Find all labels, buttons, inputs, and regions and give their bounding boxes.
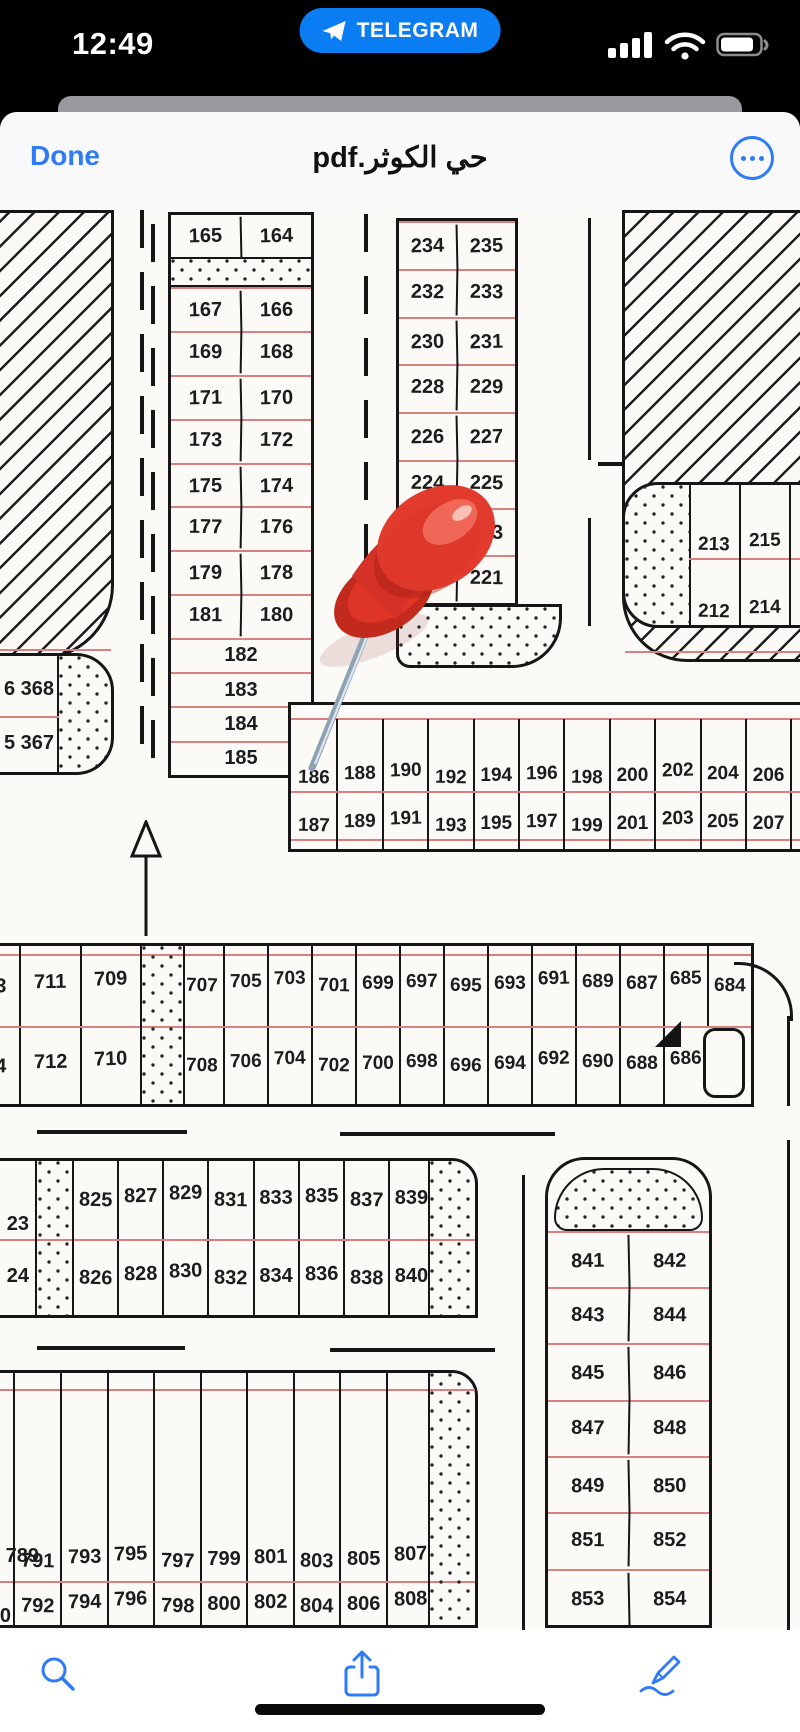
share-icon: [340, 1649, 384, 1699]
plot-number: 171: [171, 377, 241, 420]
plot-pair-row: 165 164: [171, 215, 311, 257]
plot-number: 207: [753, 813, 785, 835]
plot-number: 712: [34, 1050, 68, 1074]
plot-row: 2132152: [689, 485, 800, 558]
plot-row: 825827829831833835837839: [74, 1161, 433, 1239]
plot-number: 804: [300, 1594, 334, 1618]
plot-row: 713711709: [0, 946, 140, 1026]
nav-bar: Done حي الكوثر.pdf: [0, 112, 800, 210]
paper-plane-icon: [322, 18, 348, 44]
road-dash: [37, 1130, 187, 1134]
plot-number: 700: [362, 1053, 394, 1075]
plot-number: 693: [494, 973, 526, 995]
plot-number: 699: [362, 973, 394, 995]
plot-pair-row: 849 850: [548, 1456, 709, 1512]
plot-number: 854: [627, 1571, 710, 1627]
plot-number: 825: [79, 1188, 113, 1212]
plot-number: 687: [626, 973, 658, 995]
plot-number: 851: [548, 1513, 628, 1569]
plot-number: 791: [21, 1550, 55, 1574]
plot-number: 204: [707, 763, 739, 786]
more-options-button[interactable]: [730, 136, 774, 180]
plot-number: 232: [399, 269, 457, 316]
plot-pair-row: 841 842: [548, 1231, 709, 1287]
plot-number: 193: [435, 815, 467, 838]
plot-number: 230: [399, 319, 457, 366]
plot-number: 834: [259, 1265, 292, 1288]
clock: 12:49: [72, 26, 154, 62]
banner-label: TELEGRAM: [357, 19, 479, 43]
plot-number: 790: [0, 1605, 11, 1628]
plot-number: 6 368: [0, 678, 67, 701]
plot-number: 200: [617, 765, 649, 787]
plot-number: 172: [240, 419, 312, 462]
plot-number: 166: [240, 290, 312, 333]
red-pushpin-marker: [286, 472, 516, 782]
road-centerline-dashed: [140, 210, 144, 766]
plot-number: 177: [171, 507, 241, 550]
plot-number: 229: [456, 365, 516, 412]
plot-number: 853: [547, 1571, 628, 1627]
plot-number: 835: [304, 1184, 338, 1208]
plot-number: 841: [547, 1233, 628, 1289]
wifi-icon: [664, 30, 706, 60]
plot-number: 205: [707, 811, 739, 834]
plot-number: 797: [160, 1550, 194, 1574]
plot-number: 203: [662, 807, 694, 830]
plot-number: 852: [627, 1513, 709, 1569]
plot-pair-row: 169 168: [171, 331, 311, 375]
dot: [741, 156, 746, 161]
plot-number: 848: [627, 1400, 709, 1456]
dot: [759, 156, 764, 161]
plot-number: 713: [0, 974, 7, 998]
plot-number: 198: [571, 767, 603, 790]
road-dash: [37, 1346, 185, 1350]
plot-number: 688: [626, 1053, 658, 1075]
stippled-strip: [38, 1161, 74, 1315]
plot-pair-row: 843 844: [548, 1287, 709, 1343]
plot-number: 214: [749, 597, 781, 620]
plot-number: 164: [240, 215, 312, 258]
search-button[interactable]: [32, 1646, 84, 1702]
stippled-end-cap: [428, 1373, 475, 1625]
plot-number: 808: [393, 1587, 427, 1611]
plot-pair-row: 234 235: [399, 221, 515, 269]
plot-number: 838: [349, 1266, 383, 1290]
plot-number: 694: [494, 1053, 526, 1075]
plot-number: 692: [538, 1047, 570, 1070]
plot-pair-row: 853 854: [548, 1569, 709, 1625]
status-icons: [608, 30, 772, 60]
plot-pair-row: 232 233: [399, 269, 515, 317]
plot-number: 701: [318, 975, 350, 998]
plot-number: 686: [670, 1047, 702, 1070]
plot-number: 849: [547, 1458, 628, 1514]
plot-number: 806: [347, 1593, 380, 1616]
plot-number: 697: [406, 971, 438, 994]
plot-number: 195: [480, 813, 512, 835]
plot-row: 1871891911931951971992012032052072: [291, 791, 800, 849]
plot-number: 707: [186, 975, 218, 998]
cut-plot-cell: 23 24: [0, 1161, 37, 1315]
plot-number: 711: [34, 970, 67, 994]
plot-pair-row: 228 229: [399, 364, 515, 412]
plot-number: 706: [230, 1051, 262, 1074]
plot-block-684-714: 713711709 714712710 70770570370169969769…: [0, 943, 754, 1107]
document-title: حي الكوثر.pdf: [312, 140, 487, 175]
plot-number: 179: [171, 552, 241, 595]
plot-number: 199: [571, 815, 603, 838]
plot-number: 187: [298, 815, 330, 838]
plot-number: 167: [171, 290, 241, 333]
plot-number: 169: [171, 332, 241, 375]
plot-number: 704: [274, 1047, 306, 1070]
plot-number: 175: [171, 465, 241, 508]
plot-number: 847: [548, 1400, 628, 1456]
plot-number: 710: [94, 1047, 128, 1071]
plot-number: 792: [21, 1594, 55, 1618]
plot-number: 24: [7, 1265, 29, 1288]
plot-block-823-840: 23 24 825827829831833835837839 826828830…: [0, 1158, 478, 1318]
road-dash: [330, 1348, 495, 1352]
cut-plot-cell: 789 790: [0, 1373, 15, 1625]
road-edge-line: [787, 1140, 790, 1630]
plot-number: 798: [160, 1594, 194, 1618]
plot-number: 5 367: [0, 732, 67, 755]
stippled-strip: [140, 946, 185, 1104]
road-centerline-dashed: [151, 224, 155, 766]
plot-number: 844: [627, 1287, 709, 1343]
plot-block-841-854: 841 842 843 844 845 846 847 848 849 850: [545, 1157, 712, 1628]
plot-number: 234: [399, 223, 457, 270]
plot-number: 828: [124, 1262, 158, 1286]
plot-number: 843: [548, 1287, 628, 1343]
plot-number: 23: [7, 1213, 29, 1236]
plot-block-367-368: 6 368 5 367: [0, 653, 114, 775]
plot-number: 189: [344, 811, 376, 834]
plot-number: 215: [749, 530, 781, 553]
corner-plot-unlabeled: [703, 1028, 745, 1098]
plot-block-789-808: 789 790 791793795797799801803805807 7927…: [0, 1370, 478, 1628]
plot-pair-row: 845 846: [548, 1343, 709, 1399]
plot-number: 833: [259, 1187, 292, 1210]
plot-number: 691: [538, 967, 570, 990]
plot-number: 799: [207, 1548, 240, 1571]
plot-pair-row: 226 227: [399, 412, 515, 460]
plot-number: 170: [240, 377, 312, 420]
plot-number: 213: [698, 534, 730, 557]
plot-number: 705: [230, 971, 262, 994]
stippled-end-cap: [428, 1161, 475, 1315]
plot-number: 702: [318, 1055, 350, 1078]
plot-row: 708706704702700698696694692690688686: [181, 1028, 707, 1104]
plot-number: 212: [698, 601, 730, 624]
plot-number: 831: [214, 1188, 248, 1212]
plot-pair-row: 167 166: [171, 287, 311, 331]
plot-pair-row: 173 172: [171, 419, 311, 463]
plot-row: 791793795797799801803805807: [16, 1373, 433, 1581]
triangle-marker-icon: [652, 1018, 684, 1050]
plot-number: 850: [627, 1458, 710, 1514]
plot-number: 703: [274, 967, 306, 990]
telegram-activity-banner[interactable]: TELEGRAM: [300, 8, 501, 53]
markup-button[interactable]: [634, 1646, 686, 1702]
plot-number: 836: [304, 1262, 338, 1286]
plot-number: 690: [582, 1051, 614, 1074]
plot-number: 840: [395, 1265, 428, 1288]
plot-number: 181: [171, 594, 241, 637]
plot-number: 794: [67, 1590, 101, 1614]
plot-number: 807: [393, 1542, 427, 1566]
plot-row: 21221421: [689, 558, 800, 625]
plot-number: 837: [349, 1188, 383, 1212]
stippled-dome: [554, 1168, 703, 1231]
plot-number: 698: [406, 1051, 438, 1074]
plot-number: 235: [456, 223, 516, 270]
plot-number: 206: [753, 765, 785, 787]
battery-icon: [716, 31, 772, 59]
plot-row: 707705703701699697695693691689687685684: [181, 946, 751, 1026]
iphone-screen: 12:49 TELEGRAM: [0, 0, 800, 1732]
pdf-page-map[interactable]: 165 164 167 166 169 168 171 170: [0, 210, 800, 1630]
plot-number: 689: [582, 971, 614, 994]
plot-row: 714712710: [0, 1028, 140, 1104]
plot-number: 845: [547, 1346, 628, 1402]
road-edge-line: [522, 1175, 525, 1630]
done-button[interactable]: Done: [30, 140, 100, 172]
plot-number: 795: [114, 1542, 148, 1566]
plot-pair-row: 851 852: [548, 1512, 709, 1568]
plot-number: 168: [240, 332, 312, 375]
plot-number: 829: [169, 1181, 203, 1205]
plot-pair-row: 847 848: [548, 1400, 709, 1456]
plot-number: 803: [300, 1550, 334, 1574]
plot-number: 801: [254, 1546, 288, 1570]
hatched-area-top-left: [0, 210, 114, 660]
plot-number: 196: [526, 763, 558, 786]
plot-number: 233: [456, 269, 516, 316]
plot-number: 202: [662, 759, 694, 782]
road-arrow-icon: [128, 820, 164, 940]
plot-number: 830: [169, 1259, 203, 1283]
cellular-signal-icon: [608, 30, 654, 60]
plot-number: 708: [186, 1055, 218, 1078]
markup-pen-icon: [636, 1652, 684, 1696]
plot-number: 226: [399, 414, 457, 461]
home-indicator[interactable]: [255, 1704, 545, 1715]
plot-number: 826: [79, 1266, 113, 1290]
share-button[interactable]: [336, 1646, 388, 1702]
stippled-end-cap: [625, 485, 691, 625]
plot-number: 201: [617, 813, 649, 835]
plot-number: 714: [0, 1054, 7, 1078]
plot-number: 802: [254, 1590, 288, 1614]
plot-number: 685: [670, 967, 702, 990]
plot-number: 800: [207, 1593, 240, 1616]
road-dash: [340, 1132, 555, 1136]
plot-number: 197: [526, 811, 558, 834]
plot-number: 695: [450, 975, 482, 998]
plot-row: 792794796798800802804806808: [16, 1583, 433, 1625]
plot-number: 805: [347, 1548, 380, 1571]
plot-number: 165: [171, 215, 241, 258]
road-edge-line: [588, 218, 591, 460]
plot-number: 227: [456, 414, 516, 461]
plot-number: 796: [114, 1587, 148, 1611]
road-corner-arc: [734, 962, 793, 1021]
stippled-strip: [171, 257, 311, 288]
plot-number: 173: [171, 419, 241, 462]
road-edge-line: [787, 1016, 790, 1106]
plot-number: 793: [67, 1546, 101, 1570]
plot-number: 827: [124, 1184, 158, 1208]
plot-number: 231: [456, 319, 516, 366]
plot-number: 832: [214, 1266, 248, 1290]
red-line: [625, 651, 800, 653]
dot: [750, 156, 755, 161]
red-line: [0, 716, 59, 718]
pdf-viewer-sheet: Done حي الكوثر.pdf 165 164: [0, 112, 800, 1732]
plot-number: 839: [395, 1187, 428, 1210]
plot-number: 842: [627, 1233, 710, 1289]
red-line: [0, 649, 111, 651]
plot-pair-row: 230 231: [399, 317, 515, 365]
road-edge-line: [588, 518, 591, 626]
search-icon: [36, 1652, 80, 1696]
plot-block-212-215: 2132152 21221421: [622, 482, 800, 628]
plot-pair-row: 171 170: [171, 375, 311, 419]
plot-number: 228: [399, 365, 457, 412]
plot-number: 696: [450, 1055, 482, 1078]
plot-number: 846: [627, 1346, 710, 1402]
plot-row: 826828830832834836838840: [74, 1241, 433, 1315]
plot-number: 709: [94, 967, 128, 991]
plot-number: 191: [389, 807, 421, 830]
